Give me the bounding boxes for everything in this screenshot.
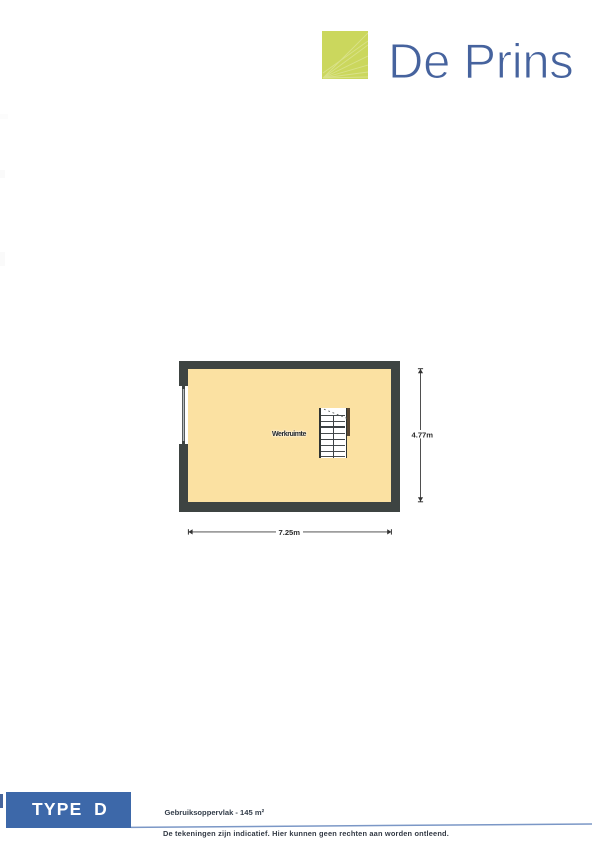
svg-text:4.77m: 4.77m <box>412 430 434 439</box>
svg-text:7.25m: 7.25m <box>279 528 301 537</box>
